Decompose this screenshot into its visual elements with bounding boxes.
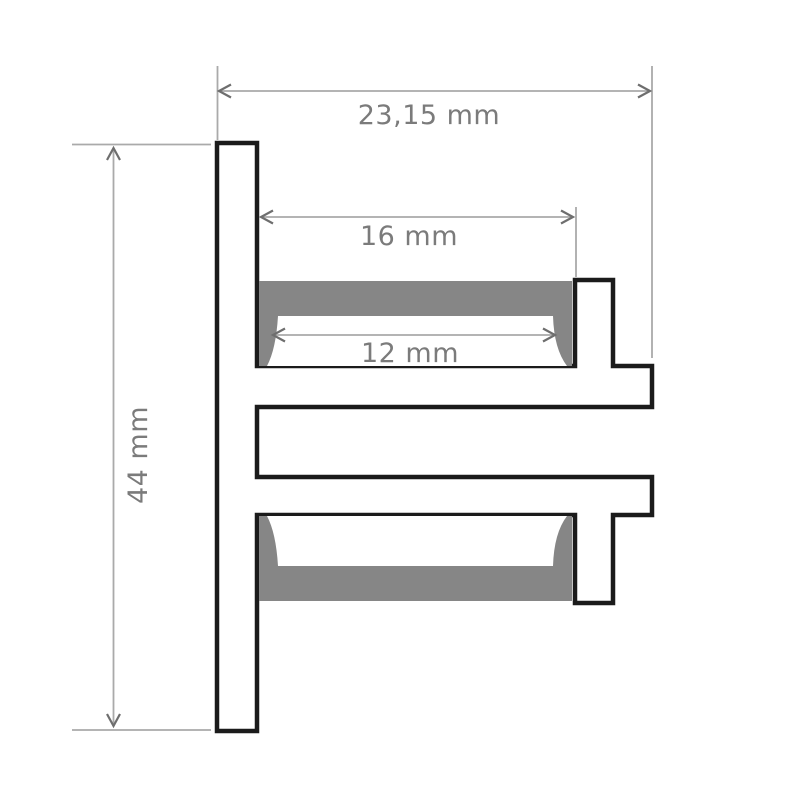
dim-label-overall-height: 44 mm xyxy=(123,406,154,504)
diagram-canvas: 23,15 mm 16 mm 12 mm 44 mm xyxy=(0,0,800,800)
dim-label-channel-width: 16 mm xyxy=(360,221,458,252)
dim-overall-height: 44 mm xyxy=(72,145,211,731)
dim-label-lens-width: 12 mm xyxy=(361,338,459,369)
dim-label-overall-width: 23,15 mm xyxy=(358,100,500,131)
profile-cross-section-diagram: 23,15 mm 16 mm 12 mm 44 mm xyxy=(0,0,800,800)
dim-channel-width: 16 mm xyxy=(261,207,576,277)
lower-led-insert xyxy=(259,516,572,601)
lower-lens-cavity xyxy=(267,516,567,566)
